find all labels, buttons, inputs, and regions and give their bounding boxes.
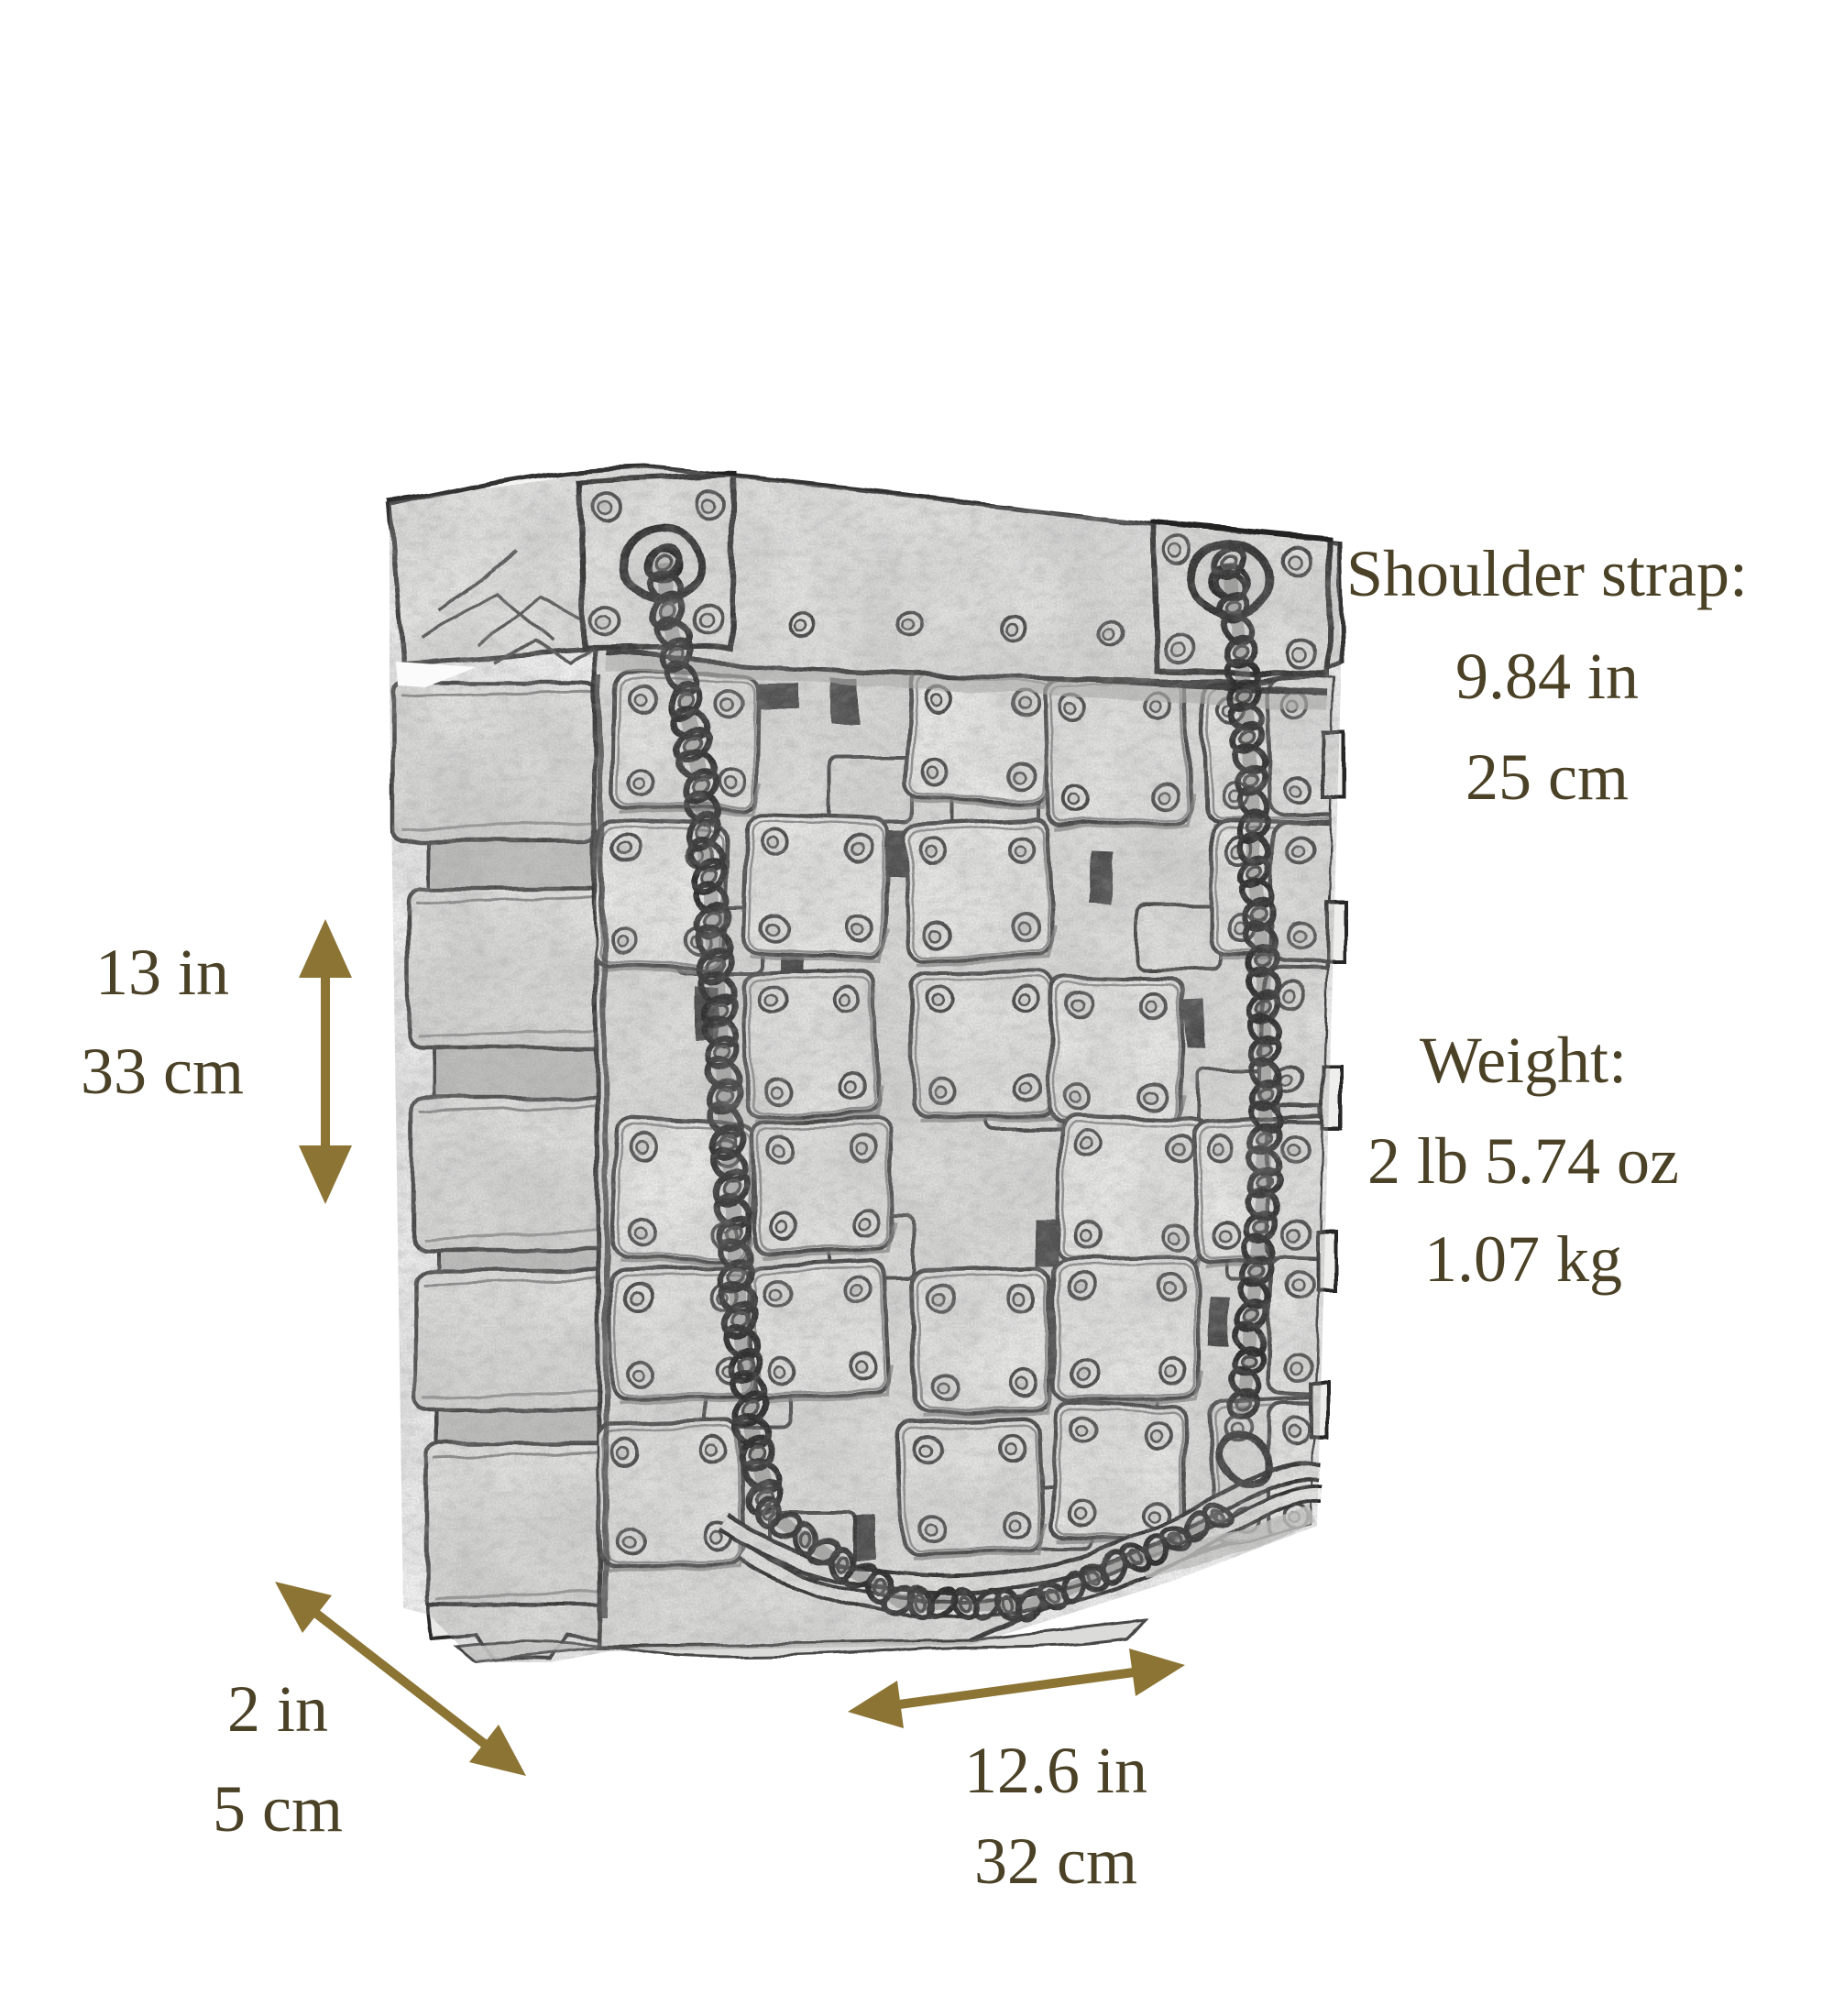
svg-text:1.07 kg: 1.07 kg (1424, 1222, 1622, 1296)
svg-text:12.6 in: 12.6 in (964, 1734, 1147, 1807)
svg-text:33 cm: 33 cm (81, 1035, 244, 1108)
svg-text:Shoulder strap:: Shoulder strap: (1346, 537, 1748, 610)
svg-text:9.84 in: 9.84 in (1455, 640, 1639, 713)
svg-text:5 cm: 5 cm (213, 1772, 343, 1846)
svg-text:25 cm: 25 cm (1465, 740, 1629, 814)
svg-text:2 in: 2 in (227, 1672, 328, 1746)
svg-text:2 lb 5.74 oz: 2 lb 5.74 oz (1367, 1124, 1679, 1198)
svg-text:13 in: 13 in (95, 936, 229, 1009)
svg-text:32 cm: 32 cm (974, 1824, 1137, 1898)
svg-text:Weight:: Weight: (1420, 1024, 1627, 1097)
